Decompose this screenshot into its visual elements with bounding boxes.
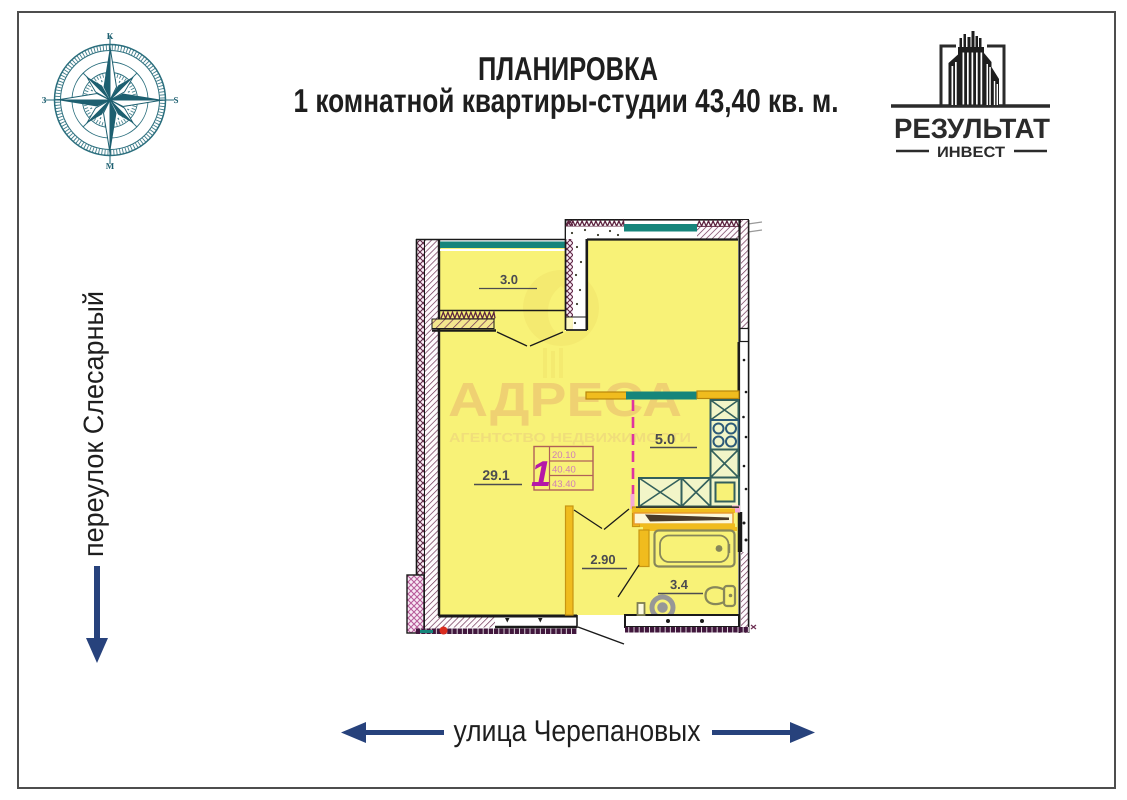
svg-text:S: S bbox=[173, 95, 178, 105]
svg-text:1 комнатной квартиры-студии 43: 1 комнатной квартиры-студии 43,40 кв. м. bbox=[294, 82, 839, 119]
svg-text:К: К bbox=[107, 31, 114, 41]
svg-text:1: 1 bbox=[531, 453, 551, 494]
svg-text:20.10: 20.10 bbox=[552, 450, 576, 461]
svg-text:5.0: 5.0 bbox=[655, 432, 675, 448]
svg-text:29.1: 29.1 bbox=[482, 467, 509, 483]
svg-text:АДРЕСА: АДРЕСА bbox=[448, 374, 682, 427]
svg-text:М: М bbox=[106, 161, 115, 171]
svg-text:переулок Слесарный: переулок Слесарный bbox=[78, 291, 109, 557]
svg-text:ИНВЕСТ: ИНВЕСТ bbox=[937, 144, 1005, 161]
svg-text:РЕЗУЛЬТАТ: РЕЗУЛЬТАТ bbox=[894, 113, 1050, 144]
svg-text:3.4: 3.4 bbox=[670, 577, 689, 592]
svg-text:3.0: 3.0 bbox=[500, 272, 518, 287]
svg-text:43.40: 43.40 bbox=[552, 479, 576, 490]
svg-text:2.90: 2.90 bbox=[590, 552, 615, 567]
svg-text:40.40: 40.40 bbox=[552, 465, 576, 476]
svg-text:З: З bbox=[42, 95, 47, 105]
svg-text:улица Черепановых: улица Черепановых bbox=[454, 715, 701, 748]
